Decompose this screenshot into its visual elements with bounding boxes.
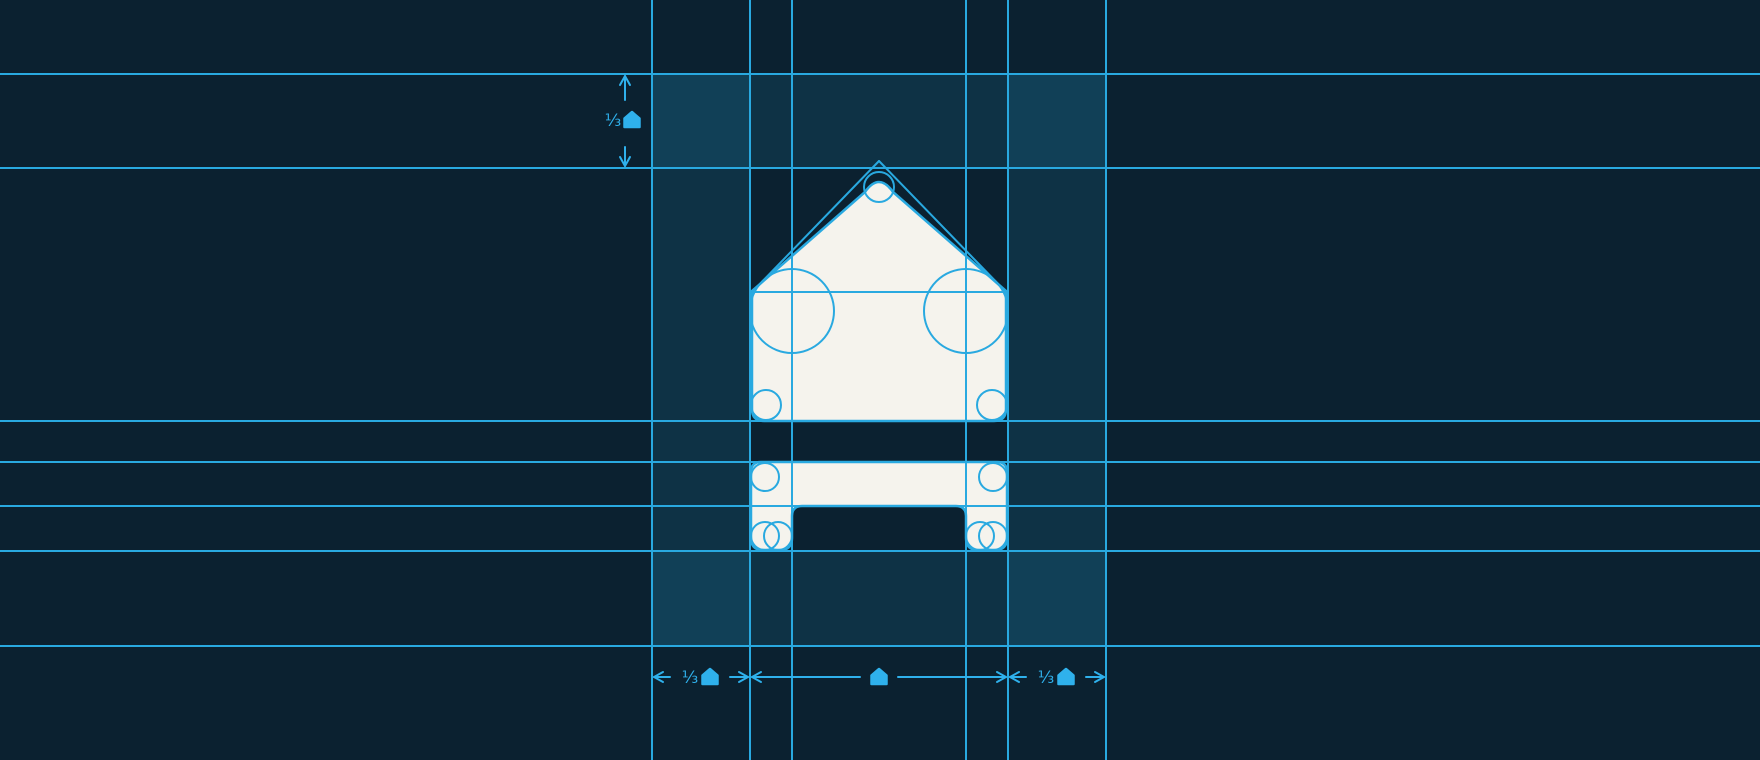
right-margin-band [1008, 74, 1106, 646]
dimension-fraction-label: ⅓ [605, 111, 621, 131]
left-margin-band [652, 74, 750, 646]
dimension-fraction-label: ⅓ [682, 668, 698, 688]
blueprint-canvas: ⅓⅓⅓ [0, 0, 1760, 760]
logo-grid-construction-diagram: ⅓⅓⅓ [0, 0, 1760, 760]
dimension-fraction-label: ⅓ [1038, 668, 1054, 688]
